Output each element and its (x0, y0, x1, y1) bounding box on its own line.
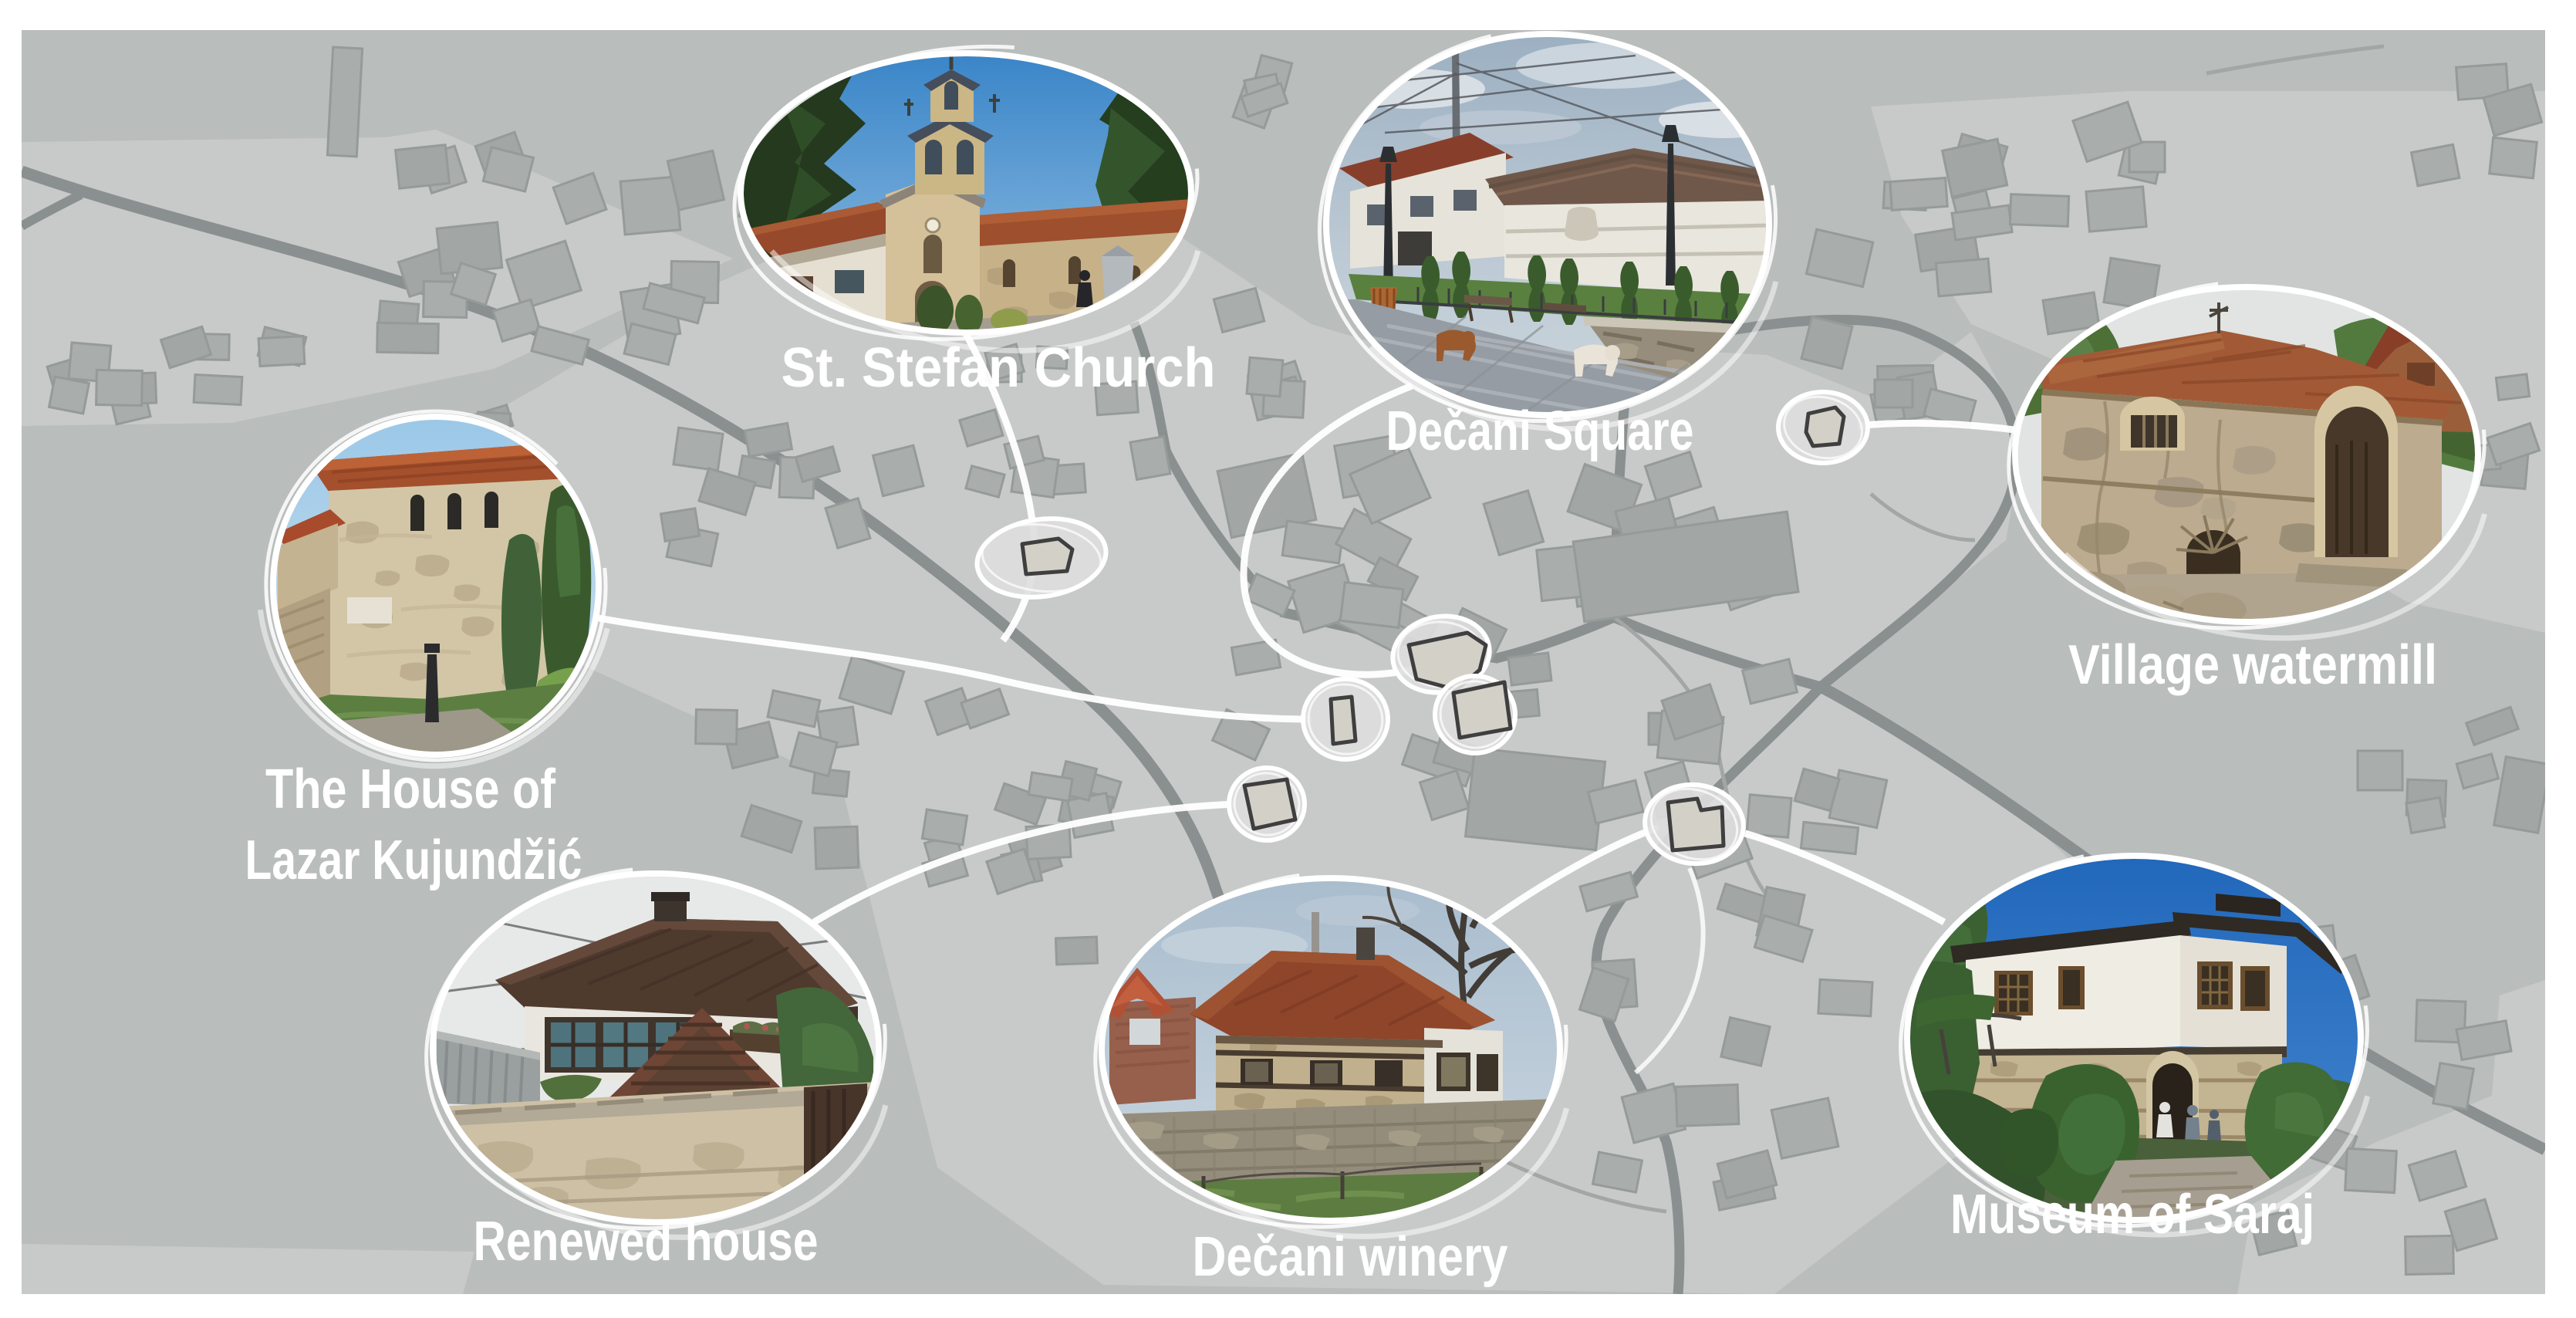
svg-text:Lazar Kujundžić: Lazar Kujundžić (245, 830, 582, 891)
svg-text:Renewed house: Renewed house (474, 1211, 819, 1272)
svg-text:Dečani winery: Dečani winery (1193, 1226, 1508, 1288)
svg-text:Museum of Saraj: Museum of Saraj (1950, 1184, 2314, 1245)
svg-text:Dečani Square: Dečani Square (1386, 400, 1694, 462)
svg-text:The House of: The House of (265, 759, 556, 820)
svg-text:Village watermill: Village watermill (2068, 634, 2437, 696)
svg-text:St. Stefan Church: St. Stefan Church (782, 337, 1216, 399)
